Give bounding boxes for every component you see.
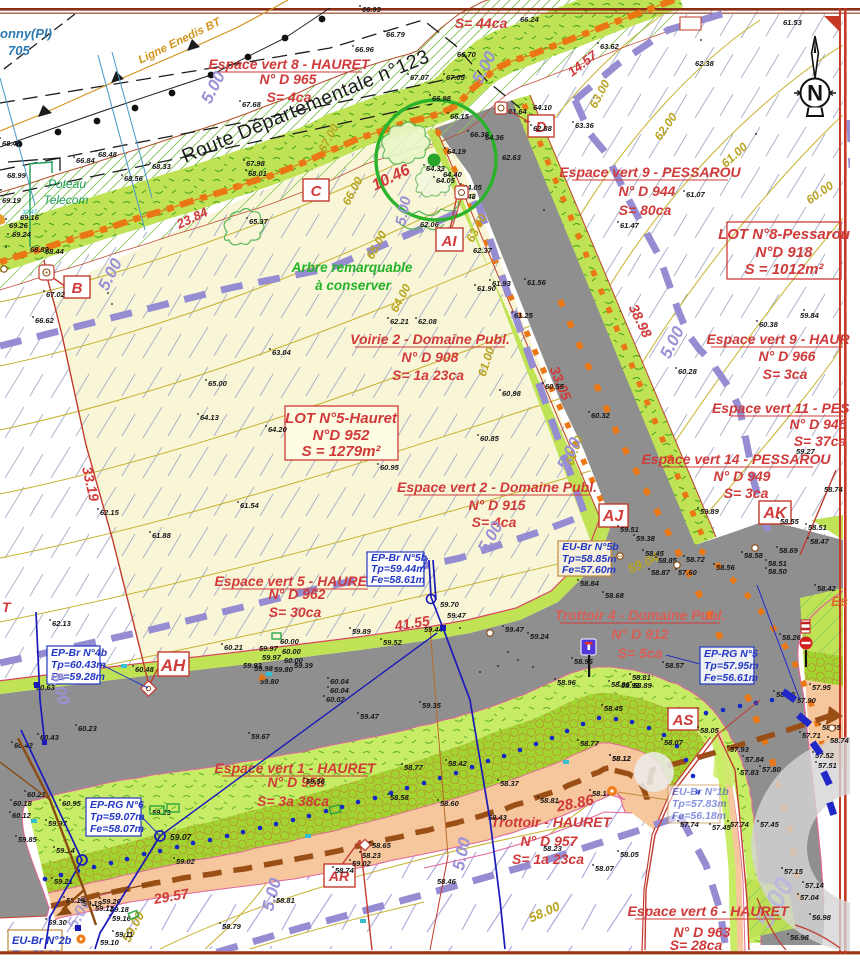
svg-text:58.96: 58.96 (574, 657, 594, 666)
svg-text:S = 1279m²: S = 1279m² (302, 443, 382, 460)
svg-text:59.85: 59.85 (18, 835, 38, 844)
svg-text:59.14: 59.14 (56, 846, 76, 855)
svg-text:57.74: 57.74 (680, 820, 700, 829)
svg-text:58.05: 58.05 (620, 850, 640, 859)
svg-text:59.84: 59.84 (800, 311, 820, 320)
svg-text:58.96: 58.96 (611, 680, 631, 689)
svg-text:59.56: 59.56 (306, 777, 326, 786)
svg-text:62.15: 62.15 (100, 508, 120, 517)
svg-text:EP-Br N°4b: EP-Br N°4b (51, 647, 108, 659)
svg-text:N°D 918: N°D 918 (756, 244, 814, 261)
svg-text:Espace vert 8 - HAURET: Espace vert 8 - HAURET (208, 56, 371, 72)
svg-text:AH: AH (160, 656, 186, 675)
svg-text:57.60: 57.60 (678, 568, 698, 577)
svg-text:60.04: 60.04 (330, 677, 350, 686)
svg-text:60.28: 60.28 (678, 367, 698, 376)
svg-text:58.81: 58.81 (276, 896, 295, 905)
svg-text:58.81: 58.81 (540, 796, 559, 805)
svg-text:58.23: 58.23 (362, 851, 382, 860)
svg-text:58.69: 58.69 (779, 546, 799, 555)
svg-text:69.24: 69.24 (12, 230, 32, 239)
svg-text:705: 705 (8, 43, 30, 58)
svg-text:Espace vert 9 - PESSAROU: Espace vert 9 - PESSAROU (559, 164, 741, 180)
svg-text:58.51: 58.51 (808, 523, 827, 532)
svg-text:Telecom: Telecom (44, 193, 89, 207)
svg-text:57.93: 57.93 (730, 745, 750, 754)
svg-text:S= 3a 38ca: S= 3a 38ca (257, 793, 329, 809)
svg-text:60.18: 60.18 (13, 799, 33, 808)
svg-text:62.88: 62.88 (533, 124, 553, 133)
svg-text:58.77: 58.77 (404, 763, 424, 772)
svg-text:56.98: 56.98 (790, 933, 810, 942)
svg-text:60.95: 60.95 (380, 463, 400, 472)
svg-text:68.01: 68.01 (248, 169, 267, 178)
svg-text:63.04: 63.04 (272, 348, 292, 357)
svg-text:S= 44ca: S= 44ca (455, 15, 508, 31)
svg-text:AI: AI (441, 233, 458, 250)
svg-text:Tp=59.07m: Tp=59.07m (90, 811, 145, 823)
svg-text:56.98: 56.98 (812, 913, 832, 922)
svg-text:58.07: 58.07 (664, 738, 684, 747)
svg-text:62.06: 62.06 (420, 220, 440, 229)
svg-text:58.47: 58.47 (810, 537, 830, 546)
svg-text:LOT N°5-Hauret: LOT N°5-Hauret (285, 410, 398, 427)
svg-text:62.63: 62.63 (502, 153, 522, 162)
svg-text:59.12: 59.12 (95, 904, 115, 913)
svg-text:B: B (72, 280, 83, 297)
svg-text:58.26: 58.26 (782, 633, 802, 642)
svg-text:59.98: 59.98 (254, 664, 274, 673)
svg-text:Trottoir - HAURET: Trottoir - HAURET (491, 814, 613, 830)
svg-text:Trottoir 4 - Domaine Publ.: Trottoir 4 - Domaine Publ. (555, 607, 726, 623)
svg-text:Fe=56.61m: Fe=56.61m (704, 672, 758, 684)
svg-text:Voirie 2 - Domaine Publ.: Voirie 2 - Domaine Publ. (350, 331, 510, 347)
svg-text:59.47: 59.47 (360, 712, 380, 721)
svg-text:EP-RG N°6: EP-RG N°6 (90, 799, 144, 811)
svg-text:60.00: 60.00 (282, 647, 302, 656)
svg-text:59.47: 59.47 (447, 611, 467, 620)
svg-text:60.95: 60.95 (62, 799, 82, 808)
svg-text:66.98: 66.98 (432, 94, 452, 103)
svg-text:58.42: 58.42 (448, 759, 468, 768)
svg-text:66.93: 66.93 (362, 5, 382, 14)
svg-text:60.48: 60.48 (135, 665, 155, 674)
svg-text:58.45: 58.45 (604, 704, 624, 713)
svg-text:59.80: 59.80 (274, 665, 294, 674)
svg-text:Fe=58.61m: Fe=58.61m (371, 574, 425, 586)
svg-text:S= 28ca: S= 28ca (670, 937, 723, 953)
svg-text:68.33: 68.33 (152, 162, 172, 171)
svg-text:Tp=57.95m: Tp=57.95m (704, 660, 759, 672)
svg-text:68.48: 68.48 (2, 139, 22, 148)
svg-text:59.67: 59.67 (251, 732, 271, 741)
svg-text:N° D 965: N° D 965 (260, 71, 317, 87)
svg-text:S= 30ca: S= 30ca (269, 604, 322, 620)
svg-text:59.24: 59.24 (530, 632, 550, 641)
svg-text:67.02: 67.02 (46, 290, 66, 299)
svg-text:58.43: 58.43 (488, 813, 508, 822)
svg-text:EP-RG N°5: EP-RG N°5 (704, 648, 758, 660)
svg-text:62.13: 62.13 (52, 619, 72, 628)
svg-text:59.10: 59.10 (100, 938, 120, 947)
svg-text:57.83: 57.83 (740, 768, 760, 777)
svg-text:N° D 915: N° D 915 (469, 497, 526, 513)
svg-text:57.45: 57.45 (712, 823, 732, 832)
svg-text:66.79: 66.79 (386, 30, 406, 39)
svg-text:AJ: AJ (602, 508, 625, 525)
svg-text:57.04: 57.04 (800, 893, 820, 902)
svg-text:S= 3ca: S= 3ca (763, 366, 808, 382)
svg-text:Espace vert 9 - HAURET: Espace vert 9 - HAURET (706, 331, 860, 347)
svg-text:Espace vert 11 - PESSAROU: Espace vert 11 - PESSAROU (712, 400, 860, 416)
svg-text:Es: Es (831, 593, 848, 609)
svg-text:60.04: 60.04 (330, 686, 350, 695)
svg-text:57.80: 57.80 (762, 765, 782, 774)
svg-text:67.07: 67.07 (410, 73, 430, 82)
svg-text:66.62: 66.62 (35, 316, 55, 325)
svg-text:59.52: 59.52 (383, 638, 403, 647)
svg-text:67.05: 67.05 (446, 73, 466, 82)
svg-text:61.53: 61.53 (783, 18, 803, 27)
svg-text:59.39: 59.39 (294, 661, 314, 670)
svg-text:58.23: 58.23 (543, 844, 563, 853)
svg-text:58.74: 58.74 (335, 866, 355, 875)
svg-text:60.12: 60.12 (12, 811, 32, 820)
svg-text:Espace vert 2 - Domaine Publ.: Espace vert 2 - Domaine Publ. (397, 479, 597, 495)
svg-text:68.56: 68.56 (124, 174, 144, 183)
svg-text:60.55: 60.55 (545, 382, 565, 391)
svg-text:58.50: 58.50 (768, 567, 788, 576)
svg-text:58.74: 58.74 (824, 485, 844, 494)
svg-text:60.23: 60.23 (78, 724, 98, 733)
svg-text:59.27: 59.27 (796, 447, 816, 456)
svg-text:59.38: 59.38 (636, 534, 656, 543)
svg-text:S= 1a 23ca: S= 1a 23ca (392, 367, 464, 383)
svg-text:N° D 966: N° D 966 (759, 348, 816, 364)
svg-text:64.10: 64.10 (533, 103, 553, 112)
svg-text:Arbre remarquable: Arbre remarquable (291, 260, 413, 275)
svg-text:59.70: 59.70 (440, 600, 460, 609)
svg-text:N° D 944: N° D 944 (619, 183, 676, 199)
svg-text:N° D 908: N° D 908 (402, 349, 459, 365)
svg-text:N° D 962: N° D 962 (269, 586, 326, 602)
svg-text:57.15: 57.15 (784, 867, 804, 876)
svg-text:69.26: 69.26 (9, 221, 29, 230)
svg-text:61.93: 61.93 (492, 279, 512, 288)
svg-text:59.89: 59.89 (700, 507, 720, 516)
svg-text:57.45: 57.45 (760, 820, 780, 829)
svg-text:58.57: 58.57 (665, 661, 685, 670)
svg-text:N° D 946: N° D 946 (790, 416, 847, 432)
svg-text:66.15: 66.15 (450, 112, 470, 121)
svg-text:60.32: 60.32 (591, 411, 611, 420)
svg-text:S= 5ca: S= 5ca (618, 645, 663, 661)
svg-text:58.79: 58.79 (222, 922, 242, 931)
svg-text:60.00: 60.00 (280, 637, 300, 646)
svg-text:66.96: 66.96 (355, 45, 375, 54)
svg-text:Fe=58.07m: Fe=58.07m (90, 823, 144, 835)
svg-text:61.07: 61.07 (686, 190, 706, 199)
svg-text:S= 80ca: S= 80ca (619, 202, 672, 218)
svg-text:Fe=57.60m: Fe=57.60m (562, 564, 616, 576)
svg-text:58.68: 58.68 (605, 591, 625, 600)
svg-text:59.97: 59.97 (262, 653, 282, 662)
svg-text:S = 1012m²: S = 1012m² (745, 261, 825, 278)
svg-text:60.98: 60.98 (502, 389, 522, 398)
svg-text:62.08: 62.08 (418, 317, 438, 326)
svg-text:Tp=57.83m: Tp=57.83m (672, 798, 727, 810)
svg-text:62.38: 62.38 (695, 59, 715, 68)
svg-text:LOT N°8-Pessarou: LOT N°8-Pessarou (718, 226, 850, 243)
svg-text:62.37: 62.37 (473, 246, 493, 255)
svg-text:59.02: 59.02 (352, 859, 372, 868)
svg-text:68.44: 68.44 (45, 247, 65, 256)
svg-text:59.47: 59.47 (505, 625, 525, 634)
svg-text:57.51: 57.51 (818, 761, 837, 770)
svg-text:61.88: 61.88 (152, 531, 172, 540)
svg-text:65.37: 65.37 (249, 217, 269, 226)
svg-text:59.30: 59.30 (48, 918, 68, 927)
svg-text:C: C (311, 183, 323, 200)
svg-text:à conserver: à conserver (315, 278, 392, 293)
svg-text:67.98: 67.98 (246, 159, 266, 168)
svg-text:67.68: 67.68 (242, 100, 262, 109)
svg-text:57.95: 57.95 (812, 683, 832, 692)
svg-text:onny(Pl): onny(Pl) (0, 26, 52, 41)
svg-text:68.48: 68.48 (98, 150, 118, 159)
svg-text:58.58: 58.58 (390, 793, 410, 802)
svg-text:64.19: 64.19 (447, 147, 467, 156)
svg-text:N° D 912: N° D 912 (612, 626, 669, 642)
svg-text:AS: AS (672, 712, 694, 729)
svg-text:58.37: 58.37 (500, 779, 520, 788)
svg-text:58.56: 58.56 (716, 563, 736, 572)
svg-text:62.21: 62.21 (390, 317, 409, 326)
svg-text:58.05: 58.05 (700, 726, 720, 735)
svg-text:64.33: 64.33 (426, 164, 446, 173)
svg-text:63.62: 63.62 (600, 42, 620, 51)
svg-text:N: N (807, 81, 823, 106)
svg-text:58.60: 58.60 (440, 799, 460, 808)
svg-text:58.89: 58.89 (633, 681, 653, 690)
svg-text:58.74: 58.74 (830, 736, 850, 745)
svg-text:57.14: 57.14 (805, 881, 825, 890)
svg-text:58.46: 58.46 (437, 877, 457, 886)
svg-text:59.51: 59.51 (620, 525, 639, 534)
svg-text:30.47: 30.47 (22, 210, 38, 216)
svg-text:57.84: 57.84 (745, 755, 765, 764)
svg-text:66.84: 66.84 (76, 156, 96, 165)
svg-text:58.72: 58.72 (686, 555, 706, 564)
svg-text:59.97: 59.97 (259, 644, 279, 653)
svg-text:60.85: 60.85 (480, 434, 500, 443)
svg-text:S= 1a 23ca: S= 1a 23ca (512, 851, 584, 867)
svg-text:EU-Br N°1b: EU-Br N°1b (672, 786, 729, 798)
svg-text:59.89: 59.89 (352, 627, 372, 636)
svg-text:64.05: 64.05 (436, 176, 456, 185)
svg-text:66.70: 66.70 (457, 50, 477, 59)
svg-text:59.07: 59.07 (170, 832, 193, 842)
svg-text:58.65: 58.65 (372, 841, 392, 850)
svg-text:58.12: 58.12 (612, 754, 632, 763)
svg-text:EU-Br N°5b: EU-Br N°5b (562, 541, 619, 553)
svg-text:66.36: 66.36 (470, 130, 490, 139)
svg-text:59.02: 59.02 (176, 857, 196, 866)
svg-text:58.58: 58.58 (744, 551, 764, 560)
svg-text:T: T (2, 599, 12, 615)
svg-text:58.77: 58.77 (580, 739, 600, 748)
svg-text:68.99: 68.99 (7, 171, 27, 180)
svg-text:65.00: 65.00 (208, 379, 228, 388)
svg-text:61.47: 61.47 (620, 221, 640, 230)
svg-text:N°D 952: N°D 952 (313, 427, 371, 444)
svg-text:Tp=60.43m: Tp=60.43m (51, 659, 106, 671)
svg-text:60.38: 60.38 (759, 320, 779, 329)
svg-text:64.13: 64.13 (200, 413, 220, 422)
svg-text:EU-Br N°2b: EU-Br N°2b (12, 935, 72, 947)
svg-text:Poteau: Poteau (48, 177, 86, 191)
svg-text:60.21: 60.21 (224, 643, 243, 652)
svg-text:57.90: 57.90 (797, 696, 817, 705)
svg-text:69.19: 69.19 (2, 196, 22, 205)
svg-text:61.56: 61.56 (527, 278, 547, 287)
svg-text:57.71: 57.71 (802, 731, 821, 740)
svg-text:61.54: 61.54 (240, 501, 260, 510)
svg-text:58.87: 58.87 (651, 568, 671, 577)
svg-text:58.07: 58.07 (595, 864, 615, 873)
svg-text:58.42: 58.42 (817, 584, 837, 593)
svg-text:58.96: 58.96 (557, 678, 577, 687)
svg-text:58.55: 58.55 (780, 517, 800, 526)
svg-text:63.36: 63.36 (575, 121, 595, 130)
svg-text:58.84: 58.84 (580, 579, 600, 588)
svg-text:59.35: 59.35 (422, 701, 442, 710)
svg-text:57.74: 57.74 (730, 820, 750, 829)
svg-text:N° D 949: N° D 949 (714, 468, 771, 484)
svg-text:S= 3ca: S= 3ca (724, 485, 769, 501)
svg-text:61.25: 61.25 (514, 311, 534, 320)
svg-text:64.20: 64.20 (268, 425, 288, 434)
svg-text:66.24: 66.24 (520, 15, 540, 24)
